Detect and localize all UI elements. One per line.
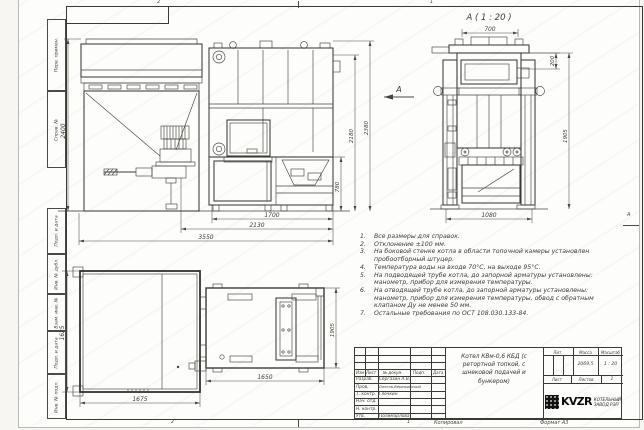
- scale-value: 1 : 20: [598, 362, 623, 367]
- col-izm: Изм: [356, 370, 364, 375]
- row-label: Утв.: [356, 414, 365, 419]
- title-block: Изм Лист № докум. Подп. Дата Разраб. Сер…: [354, 347, 622, 419]
- org-name: КОТЕЛЬНЫЙ ЗАВОД РЭП: [594, 397, 621, 407]
- plan-boiler: [189, 284, 324, 372]
- kvzr-logo-icon: [545, 395, 559, 409]
- dim-1905-plan: 1905: [330, 322, 336, 337]
- dim-780: 780: [335, 181, 341, 192]
- dim-1080: 1080: [481, 212, 496, 219]
- firebox-door: [227, 120, 270, 156]
- section-arrow-label: А: [395, 85, 401, 94]
- dim-3550: 3550: [198, 234, 213, 241]
- row-label: Пров.: [356, 385, 369, 390]
- body-seams: [457, 88, 521, 148]
- panel-seams: [238, 50, 313, 152]
- document-title: Котел КВм-0,6 КБД (с ретортной топкой, с…: [447, 353, 541, 386]
- technical-notes: 1.Все размеры для справок. 2.Отклонение …: [360, 233, 623, 318]
- bunker-flange-segments: [89, 85, 197, 89]
- plan-bunker: [73, 267, 200, 396]
- row-name: Полимарлова: [379, 414, 410, 419]
- view-a-rear: А ( 1 : 20 ): [430, 13, 548, 209]
- dim-1625: 1625: [60, 325, 66, 340]
- note-item: 3.На боковой стенке котла в области топо…: [360, 248, 623, 263]
- top-assembly: [455, 37, 523, 45]
- note-item: 6.На отводящей трубе котла, до запорной …: [360, 287, 623, 310]
- dim-1650: 1650: [257, 374, 272, 381]
- mass-value: 2069,5: [573, 362, 598, 367]
- lit-label: Лит.: [543, 350, 573, 355]
- dim-2180: 2180: [349, 128, 355, 143]
- plan-details: [189, 284, 324, 372]
- row-label: Разраб.: [356, 377, 373, 382]
- sheets-value: 1: [601, 377, 623, 382]
- view-bunker-feeder: [81, 39, 202, 211]
- side-fittings: [445, 100, 456, 198]
- pipe-flanges: [213, 51, 225, 155]
- row-label: Н. контр.: [356, 407, 377, 412]
- scale-label: Масштаб: [598, 350, 623, 355]
- copied-label: Копировал: [434, 420, 463, 426]
- section-arrow: А: [384, 85, 414, 97]
- dim-1675: 1675: [132, 396, 147, 403]
- retort-burner: [276, 160, 333, 193]
- dim-700: 700: [484, 27, 495, 33]
- top-fittings: [214, 41, 330, 48]
- col-date: Дата: [433, 370, 443, 375]
- ash-box: [459, 157, 523, 203]
- dim-200: 200: [550, 55, 556, 66]
- note-item: 4.Температура воды на входе 70°С, на вых…: [360, 264, 623, 272]
- dim-2380: 2380: [364, 120, 370, 135]
- col-sign: Подп.: [413, 370, 425, 375]
- org-logo: KVZR КОТЕЛЬНЫЙ ЗАВОД РЭП: [544, 384, 622, 419]
- upper-window: [461, 60, 529, 84]
- row-name: Онегов-Вережинский: [379, 385, 421, 389]
- drawing-page: Перв. примен. Справ. № Подп. и дата Инв.…: [0, 0, 644, 430]
- row-label: Т. контр.: [356, 392, 376, 397]
- format-label: Формат А3: [540, 420, 568, 426]
- screw-feeder: [104, 149, 195, 209]
- note-item: 5.На подводящей трубе котла, до запорной…: [360, 272, 623, 287]
- dim-1700: 1700: [264, 212, 279, 219]
- dim-1905-a: 1905: [563, 129, 569, 143]
- view-boiler-elevation: [209, 41, 340, 211]
- sheet-label: Лист: [543, 377, 571, 382]
- sheets-label: Листов: [571, 377, 601, 382]
- gear-motor: [161, 126, 189, 149]
- bottom-flanges: [461, 148, 521, 156]
- note-item: 1.Все размеры для справок.: [360, 233, 623, 241]
- dim-2400: 2400: [60, 123, 67, 138]
- row-label: Нач. отд.: [356, 399, 377, 404]
- col-list: Лист: [366, 370, 376, 375]
- kvzr-logo-text: KVZR: [561, 395, 592, 408]
- note-item: 7.Остальные требования по ОСТ 108.030.13…: [360, 310, 623, 318]
- col-doc: № докум.: [383, 370, 403, 375]
- mass-label: Масса: [573, 350, 598, 355]
- row-name: Глечкин: [379, 392, 398, 397]
- view-a-title: А ( 1 : 20 ): [465, 13, 511, 23]
- legs: [213, 205, 332, 211]
- row-name: Сергазин А.В.: [379, 377, 410, 382]
- dim-2130: 2130: [249, 222, 264, 229]
